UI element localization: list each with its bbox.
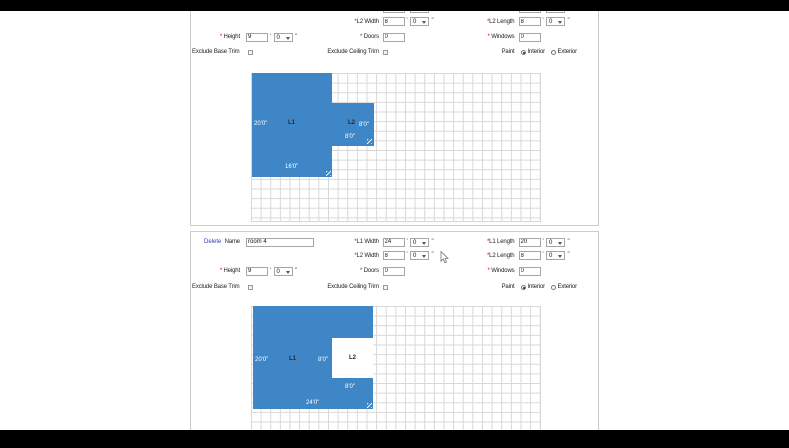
panel1-l1-resize-grip-icon[interactable] [326, 171, 331, 176]
panel2-paint-interior-radio[interactable] [521, 285, 526, 290]
panel1-height-label: * Height [191, 34, 240, 41]
panel1-l1-width-dim: 16'0" [285, 164, 298, 171]
panel1-l1-height-dim: 20'0" [254, 121, 267, 128]
panel2-doors-input[interactable] [383, 267, 405, 276]
panel1-l2-width-inches-select[interactable]: 0 [410, 17, 429, 26]
panel1-room-l2-shape[interactable]: L2 8'0" 8'0" [332, 103, 374, 146]
panel2-l2-length-feet-input[interactable] [519, 251, 541, 260]
feet-mark: ' [543, 238, 544, 247]
panel2-paint-interior-label: Interior [528, 284, 551, 291]
panel1-l2-length-feet-input[interactable] [519, 17, 541, 26]
panel2-l1-width-inches-select[interactable]: 0 [410, 238, 429, 247]
panel2-l2-section-label: L2 [349, 355, 356, 362]
panel2-l1-length-inches-select[interactable]: 0 [546, 238, 565, 247]
panel2-windows-label: * Windows [446, 268, 515, 275]
inch-mark: " [568, 251, 570, 260]
panel2-height-label: * Height [191, 268, 240, 275]
feet-mark: ' [407, 251, 408, 260]
panel1-doors-input[interactable] [383, 33, 405, 42]
inch-mark: " [295, 267, 297, 276]
panel2-l2-height-dim: 8'0" [318, 357, 328, 364]
panel1-height-feet-input[interactable] [246, 33, 268, 42]
panel2-exclude-ceiling-trim-checkbox[interactable] [383, 285, 388, 290]
panel2-height-inches-select[interactable]: 0 [274, 267, 293, 276]
panel1-l2-resize-grip-icon[interactable] [367, 139, 372, 144]
panel1-windows-input[interactable] [519, 33, 541, 42]
panel1-paint-exterior-radio[interactable] [551, 50, 556, 55]
panel2-l2-length-label: *L2 Length [446, 253, 515, 260]
panel2-paint-label: Paint [481, 284, 515, 291]
panel2-paint-exterior-radio[interactable] [551, 285, 556, 290]
inch-mark: " [432, 238, 434, 247]
feet-mark: ' [407, 17, 408, 26]
app-screen: *L2 Width ' 0 " *L2 Length ' 0 " * Heigh… [0, 0, 789, 448]
panel2-l2-width-inches-select[interactable]: 0 [410, 251, 429, 260]
panel2-name-input[interactable] [246, 238, 314, 247]
panel1-l2-width-dim: 8'0" [345, 134, 355, 141]
inch-mark: " [432, 251, 434, 260]
panel2-floorplan-grid[interactable]: 20'0" L1 8'0" 8'0" 24'0" L2 [251, 306, 541, 433]
panel2-name-label: Name [210, 239, 240, 246]
panel1-l2-height-dim: 8'0" [359, 122, 369, 129]
panel2-l2-width-dim: 8'0" [345, 384, 355, 391]
panel1-doors-label: * Doors [316, 34, 379, 41]
panel2-l2-width-label: *L2 Width [316, 253, 379, 260]
panel2-exclude-ceiling-trim-label: Exclude Ceiling Trim [306, 284, 379, 291]
bottom-letterbox-bar [0, 430, 789, 448]
panel1-room-l1-shape[interactable]: 20'0" L1 16'0" [252, 73, 332, 177]
feet-mark: ' [543, 251, 544, 260]
panel1-paint-interior-label: Interior [528, 49, 551, 56]
room-panel-2: Delete Name *L1 Width ' 0 " *L1 Length '… [190, 231, 599, 448]
inch-mark: " [568, 17, 570, 26]
panel1-height-inches-select[interactable]: 0 [274, 33, 293, 42]
panel1-exclude-base-trim-label: Exclude Base Trim [192, 49, 238, 56]
feet-mark: ' [270, 33, 271, 42]
panel2-l1-length-label: *L1 Length [446, 239, 515, 246]
panel2-l2-width-feet-input[interactable] [383, 251, 405, 260]
panel2-doors-label: * Doors [316, 268, 379, 275]
panel2-l1-length-feet-input[interactable] [519, 238, 541, 247]
panel2-paint-exterior-label: Exterior [558, 284, 583, 291]
panel1-exclude-base-trim-checkbox[interactable] [248, 50, 253, 55]
panel2-exclude-base-trim-checkbox[interactable] [248, 285, 253, 290]
panel1-l2-length-label: *L2 Length [446, 19, 515, 26]
panel1-windows-label: * Windows [446, 34, 515, 41]
inch-mark: " [568, 238, 570, 247]
panel1-floorplan-grid[interactable]: 20'0" L1 16'0" L2 8'0" 8'0" [251, 73, 541, 222]
panel1-l2-width-feet-input[interactable] [383, 17, 405, 26]
feet-mark: ' [407, 238, 408, 247]
panel2-l1-height-dim: 20'0" [255, 357, 268, 364]
panel2-l1-section-label: L1 [289, 356, 296, 363]
panel1-paint-label: Paint [481, 49, 515, 56]
panel1-exclude-ceiling-trim-label: Exclude Ceiling Trim [306, 49, 379, 56]
panel1-exclude-ceiling-trim-checkbox[interactable] [383, 50, 388, 55]
feet-mark: ' [270, 267, 271, 276]
panel2-exclude-base-trim-label: Exclude Base Trim [192, 284, 238, 291]
panel1-paint-interior-radio[interactable] [521, 50, 526, 55]
feet-mark: ' [543, 17, 544, 26]
room-panel-1: *L2 Width ' 0 " *L2 Length ' 0 " * Heigh… [190, 0, 599, 226]
panel2-l1-width-feet-input[interactable] [383, 238, 405, 247]
panel2-l1-width-dim: 24'0" [306, 400, 319, 407]
panel1-l2-width-label: *L2 Width [316, 19, 379, 26]
inch-mark: " [432, 17, 434, 26]
inch-mark: " [295, 33, 297, 42]
top-letterbox-bar [0, 0, 789, 11]
mouse-cursor-icon [440, 251, 449, 269]
panel1-l2-section-label: L2 [348, 120, 355, 127]
panel2-l1-resize-grip-icon[interactable] [367, 403, 372, 408]
panel2-windows-input[interactable] [519, 267, 541, 276]
panel2-room-l2-cutout[interactable]: L2 [332, 338, 373, 378]
panel1-l1-section-label: L1 [288, 120, 295, 127]
panel1-l2-length-inches-select[interactable]: 0 [546, 17, 565, 26]
panel2-l1-width-label: *L1 Width [316, 239, 379, 246]
panel2-l2-length-inches-select[interactable]: 0 [546, 251, 565, 260]
panel2-height-feet-input[interactable] [246, 267, 268, 276]
panel1-paint-exterior-label: Exterior [558, 49, 583, 56]
